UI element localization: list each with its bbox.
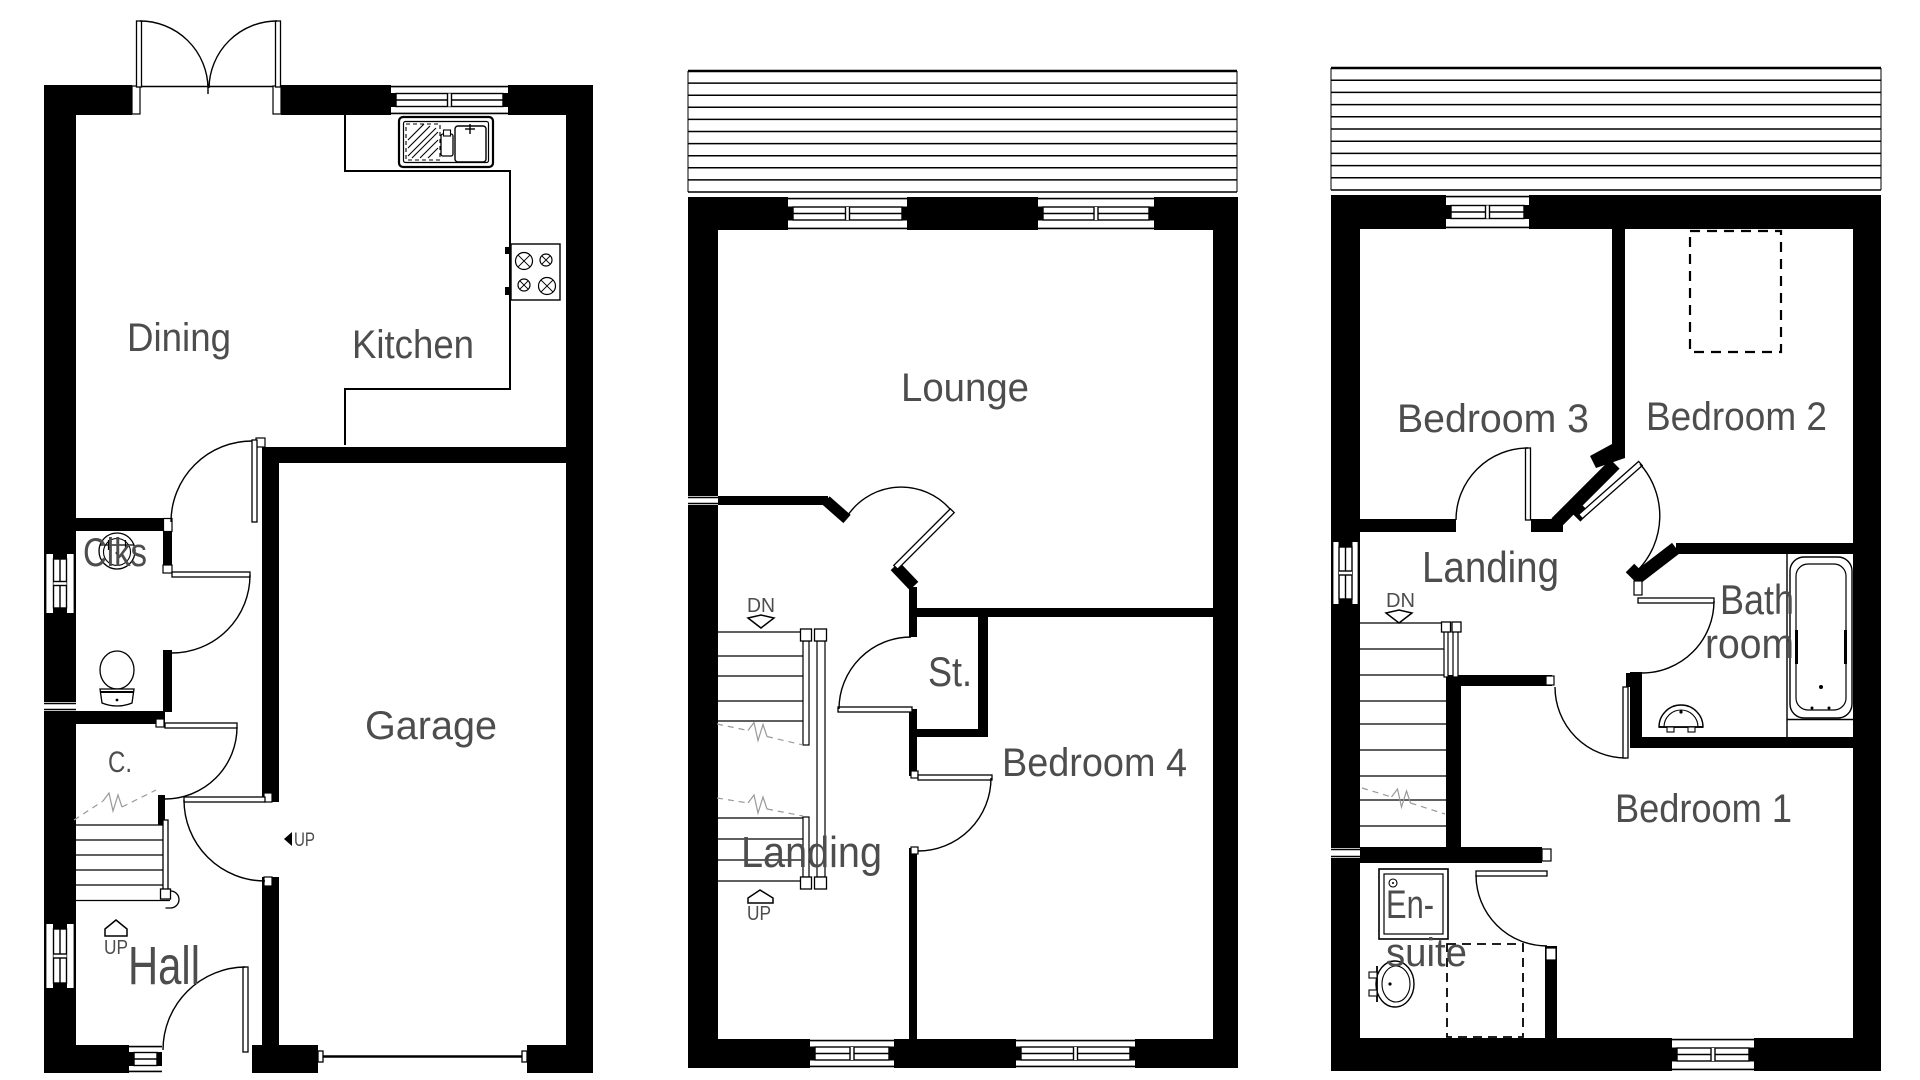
svg-text:Bedroom 2: Bedroom 2 [1646, 395, 1827, 439]
svg-text:room: room [1705, 620, 1794, 667]
svg-text:Clks: Clks [83, 531, 147, 575]
svg-text:Garage: Garage [365, 704, 497, 748]
svg-text:Bath: Bath [1720, 576, 1794, 623]
svg-text:Bedroom 1: Bedroom 1 [1615, 787, 1792, 831]
svg-text:Lounge: Lounge [901, 366, 1029, 410]
svg-text:suite: suite [1386, 931, 1467, 975]
svg-text:St.: St. [928, 648, 972, 695]
svg-text:Bedroom 3: Bedroom 3 [1397, 397, 1589, 441]
svg-text:Landing: Landing [1422, 543, 1559, 592]
svg-text:C.: C. [108, 746, 132, 779]
svg-text:UP: UP [294, 830, 315, 851]
svg-text:Hall: Hall [128, 936, 200, 996]
svg-text:Kitchen: Kitchen [352, 323, 474, 367]
svg-text:Landing: Landing [741, 828, 882, 877]
svg-text:En-: En- [1386, 883, 1434, 927]
svg-text:UP: UP [104, 937, 128, 959]
svg-text:UP: UP [747, 903, 771, 925]
svg-text:Dining: Dining [127, 316, 231, 360]
svg-text:Bedroom 4: Bedroom 4 [1002, 741, 1187, 785]
svg-text:DN: DN [747, 595, 775, 617]
svg-text:DN: DN [1386, 590, 1415, 612]
